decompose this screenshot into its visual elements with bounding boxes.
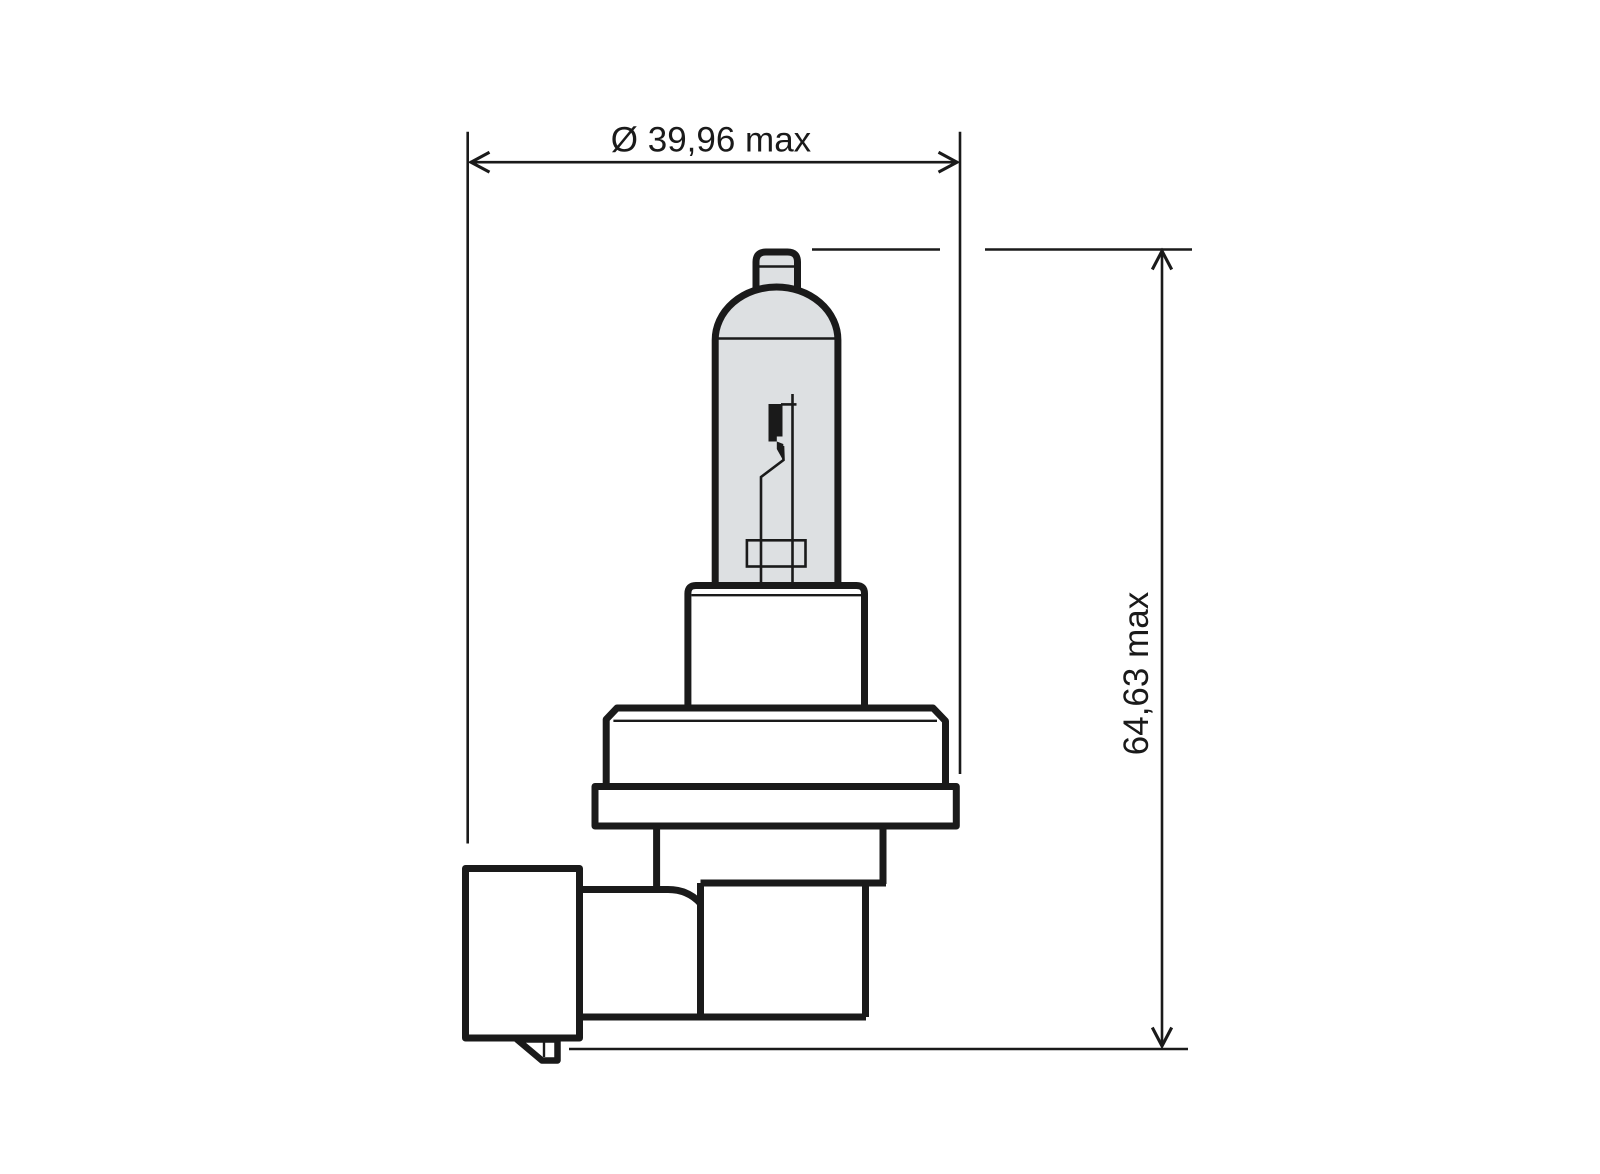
svg-text:Ø 39,96 max: Ø 39,96 max bbox=[611, 121, 812, 160]
svg-text:64,63 max: 64,63 max bbox=[1117, 591, 1156, 755]
